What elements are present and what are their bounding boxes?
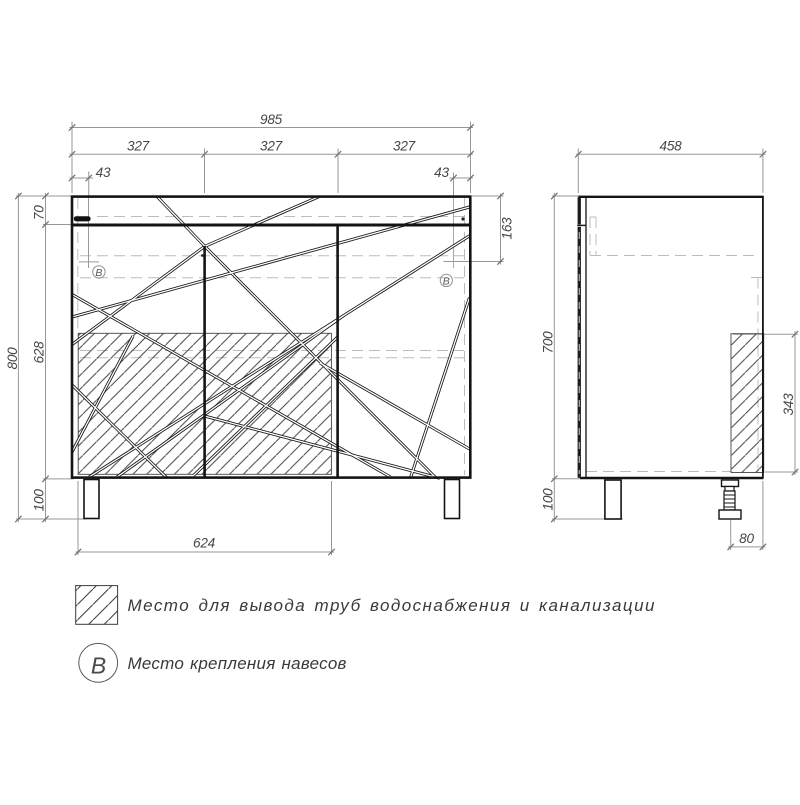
svg-text:43: 43 [96, 165, 111, 180]
svg-text:624: 624 [193, 536, 216, 551]
svg-text:800: 800 [5, 347, 20, 370]
svg-text:Место для вывода труб водоснаб: Место для вывода труб водоснабжения и ка… [128, 596, 656, 615]
svg-text:70: 70 [32, 205, 47, 220]
svg-text:628: 628 [32, 341, 47, 364]
svg-text:100: 100 [541, 488, 556, 511]
svg-text:B: B [443, 276, 450, 288]
svg-text:343: 343 [781, 393, 796, 416]
svg-text:327: 327 [260, 139, 283, 154]
svg-text:163: 163 [500, 217, 515, 240]
svg-text:700: 700 [541, 331, 556, 354]
svg-text:B: B [91, 652, 106, 678]
svg-text:100: 100 [32, 489, 47, 512]
svg-text:B: B [95, 267, 102, 279]
svg-text:Место крепления навесов: Место крепления навесов [128, 654, 347, 673]
svg-text:327: 327 [393, 139, 416, 154]
svg-text:80: 80 [739, 531, 754, 546]
svg-text:985: 985 [260, 112, 283, 127]
svg-text:327: 327 [127, 139, 150, 154]
svg-text:458: 458 [659, 139, 682, 154]
svg-text:43: 43 [434, 165, 449, 180]
